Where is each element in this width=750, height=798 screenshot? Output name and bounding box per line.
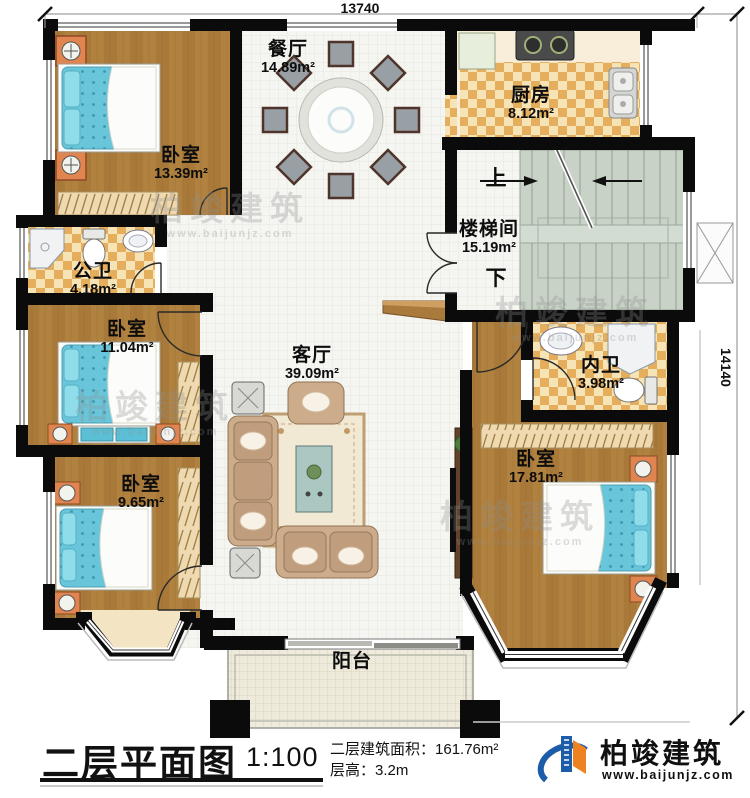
dimension-right: 14140	[718, 348, 734, 387]
toilet	[83, 229, 105, 239]
stair-down-label: 下	[486, 262, 507, 292]
title-underline-2	[40, 785, 323, 787]
company-website: www.baijunjz.com	[602, 768, 734, 782]
floor-height-line: 层高：3.2m	[330, 760, 498, 781]
room-label-kitchen: 厨房 8.12m²	[508, 86, 554, 123]
wardrobe-top-left	[58, 192, 178, 215]
floorplan-page: 13740 14140 柏竣建筑 www.baijunjz.com 柏竣建筑 w…	[0, 0, 750, 798]
toilet	[645, 377, 657, 404]
wardrobe-bottom-right	[481, 424, 653, 448]
room-label-bath-inner: 内卫 3.98m²	[578, 356, 624, 393]
floorplan-drawing	[0, 0, 750, 742]
balcony-sliding-door	[285, 639, 460, 649]
room-label-stairwell: 楼梯间 15.19m²	[459, 220, 519, 257]
plan-info: 二层建筑面积：161.76m² 层高：3.2m	[330, 739, 498, 781]
company-logo-icon	[536, 728, 596, 790]
room-label-bedroom-tl: 卧室 13.39m²	[154, 146, 208, 183]
room-label-living: 客厅 39.09m²	[285, 346, 339, 383]
company-name: 柏竣建筑	[600, 732, 724, 772]
room-label-bedroom-br: 卧室 17.81m²	[509, 450, 563, 487]
plan-scale: 1:100	[246, 742, 319, 773]
company-logo: 柏竣建筑 www.baijunjz.com	[536, 726, 748, 794]
stair-up-label: 上	[486, 162, 507, 192]
room-label-balcony: 阳台	[332, 652, 372, 673]
balcony-post	[460, 700, 500, 738]
room-label-dining: 餐厅 14.89m²	[261, 40, 315, 77]
wardrobe-middle-left	[178, 362, 200, 442]
dimension-top: 13740	[310, 0, 410, 16]
fridge	[459, 33, 495, 69]
kitchen-pass-floor	[445, 95, 457, 140]
room-label-bedroom-bl: 卧室 9.65m²	[118, 475, 164, 512]
room-label-bath-public: 公卫 4.18m²	[70, 262, 116, 299]
bed-middle-left	[48, 342, 180, 444]
title-underline	[40, 778, 323, 782]
tv	[450, 468, 456, 552]
wardrobe-bottom-left	[178, 468, 200, 598]
floor-area-line: 二层建筑面积：161.76m²	[330, 739, 498, 760]
room-label-bedroom-ml: 卧室 11.04m²	[100, 320, 153, 357]
